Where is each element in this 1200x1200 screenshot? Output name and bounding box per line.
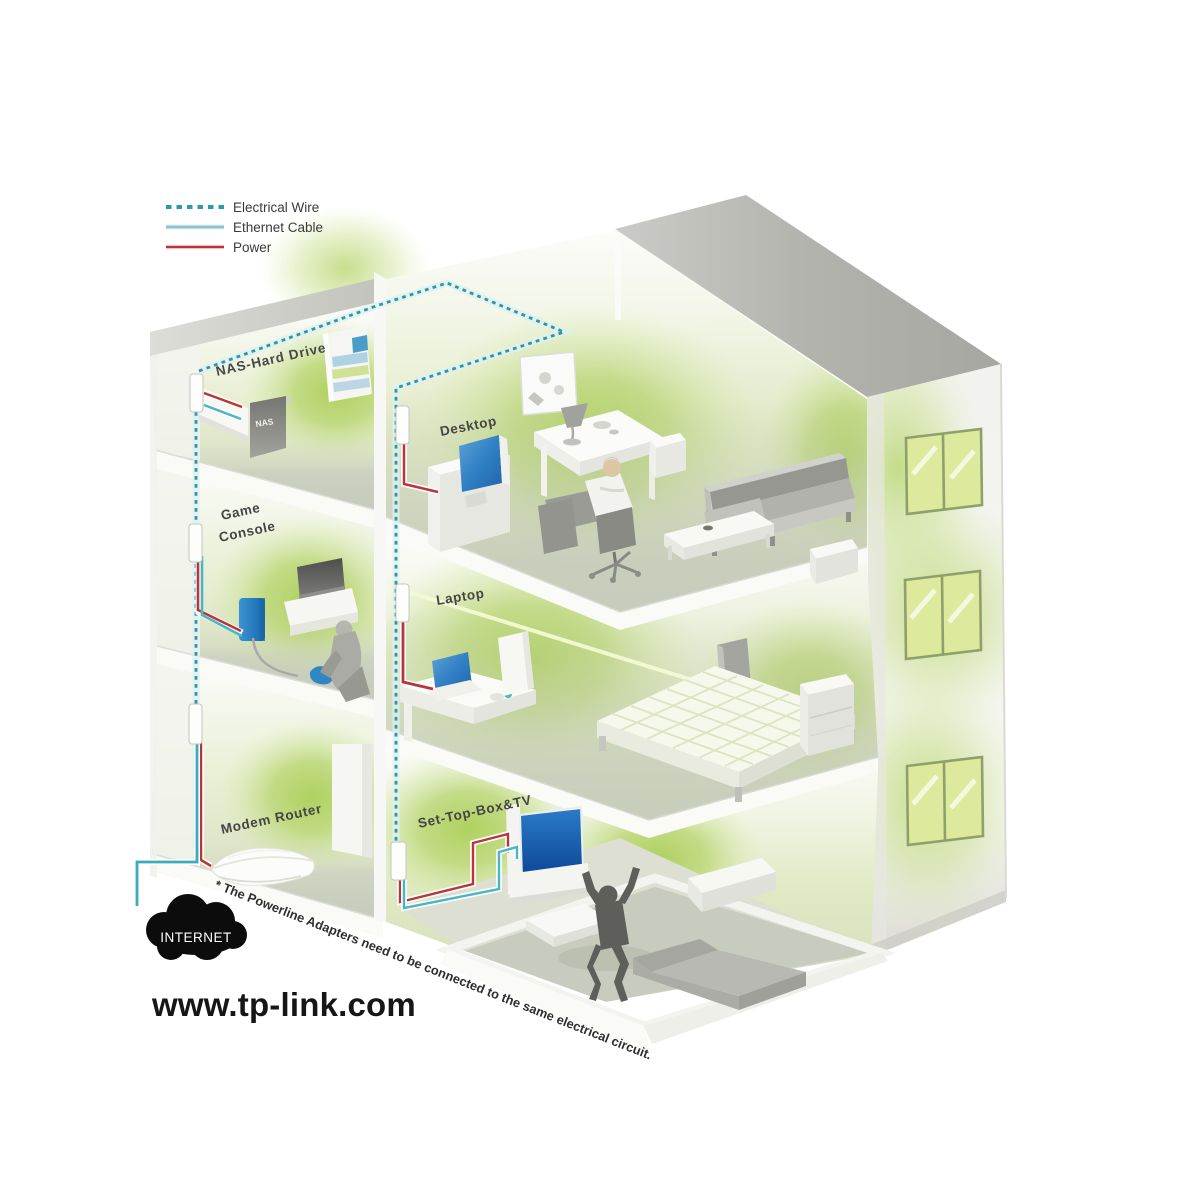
- svg-text:Ethernet Cable: Ethernet Cable: [233, 220, 323, 235]
- svg-text:Power: Power: [233, 240, 272, 255]
- svg-text:Electrical Wire: Electrical Wire: [233, 200, 319, 215]
- svg-text:INTERNET: INTERNET: [160, 930, 232, 945]
- svg-text:www.tp-link.com: www.tp-link.com: [151, 986, 416, 1023]
